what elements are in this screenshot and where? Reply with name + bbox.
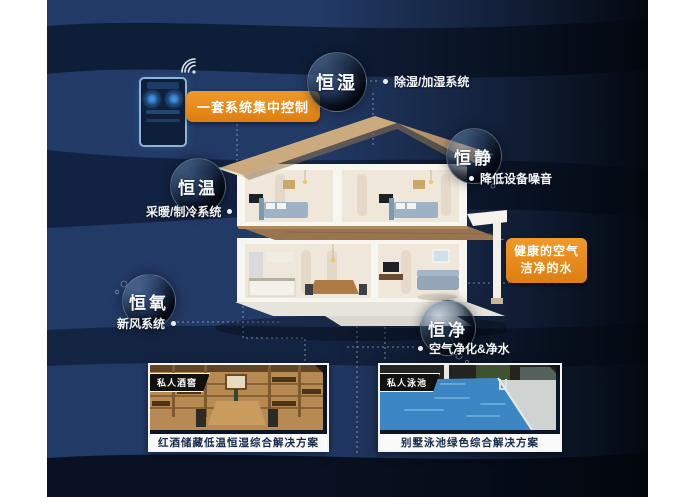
wifi-signal-icon xyxy=(180,57,200,74)
infographic-scene: 一套系统集中控制 恒湿 恒静 恒温 恒氧 恒净 除湿/加湿系统 降低设备噪音 采… xyxy=(47,0,648,497)
note-text: 除湿/加湿系统 xyxy=(394,73,469,90)
smart-control-panel-icon xyxy=(139,77,187,147)
phone-screen-header xyxy=(147,82,179,89)
note-oxygen: 新风系统 xyxy=(117,315,176,332)
note-quiet: 降低设备噪音 xyxy=(469,170,552,187)
bullet-dot xyxy=(227,209,232,214)
note-text: 采暖/制冷系统 xyxy=(146,203,221,220)
central-control-label: 一套系统集中控制 xyxy=(186,91,320,122)
pool-tag: 私人泳池 xyxy=(380,373,440,392)
callout-line1: 健康的空气 xyxy=(514,243,579,260)
pool-caption: 别墅泳池绿色综合解决方案 xyxy=(380,434,560,450)
poster-page: 一套系统集中控制 恒湿 恒静 恒温 恒氧 恒净 除湿/加湿系统 降低设备噪音 采… xyxy=(0,0,700,497)
wine-cellar-caption: 红酒储藏低温恒湿综合解决方案 xyxy=(150,434,327,450)
wine-cellar-tag: 私人酒窖 xyxy=(150,373,210,392)
note-text: 降低设备噪音 xyxy=(480,170,552,187)
phone-row xyxy=(146,119,180,122)
note-purity: 空气净化&净水 xyxy=(418,340,510,357)
pool-card: 私人泳池 别墅泳池绿色综合解决方案 xyxy=(378,363,562,452)
callout-line2: 洁净的水 xyxy=(514,260,579,277)
wine-cellar-card: 私人酒窖 红酒储藏低温恒湿综合解决方案 xyxy=(148,363,329,452)
dial-icon xyxy=(167,92,181,106)
bullet-dot xyxy=(418,346,423,351)
phone-dials xyxy=(141,92,185,106)
dial-icon xyxy=(145,92,159,106)
corner-mark xyxy=(548,365,560,377)
phone-row xyxy=(146,110,180,114)
corner-mark xyxy=(315,365,327,377)
bullet-dot xyxy=(383,79,388,84)
healthy-air-water-callout: 健康的空气 洁净的水 xyxy=(506,238,587,283)
bullet-dot xyxy=(469,176,474,181)
note-humidity: 除湿/加湿系统 xyxy=(383,73,469,90)
note-temperature: 采暖/制冷系统 xyxy=(146,203,232,220)
bubble-humidity: 恒湿 xyxy=(307,52,367,112)
note-text: 空气净化&净水 xyxy=(429,340,510,357)
note-text: 新风系统 xyxy=(117,315,165,332)
bullet-dot xyxy=(171,321,176,326)
